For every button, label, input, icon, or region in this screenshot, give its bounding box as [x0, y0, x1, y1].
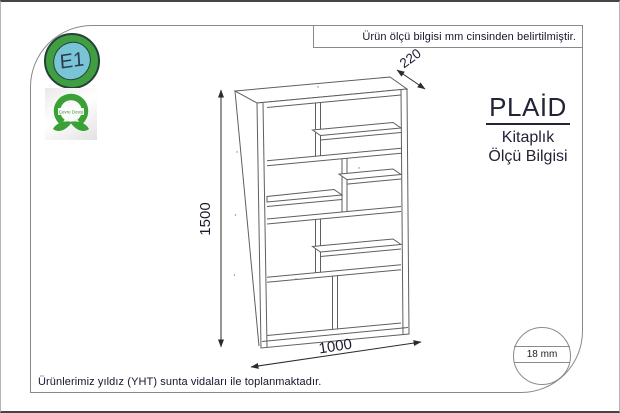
- bookshelf-technical-drawing: 1500 1000 220: [196, 47, 441, 377]
- product-info-label: Ölçü Bilgisi: [453, 147, 603, 167]
- product-title-block: PLAİD Kitaplık Ölçü Bilgisi: [453, 94, 603, 167]
- assembly-note: Ürünlerimiz yıldız (YHT) sunta vidaları …: [38, 376, 321, 388]
- e1-certificate-icon: E1: [44, 33, 100, 89]
- technical-sheet-page: Ürün ölçü bilgisi mm cinsinden belirtilm…: [0, 0, 620, 413]
- eco-friendly-icon: Çevre Dostu: [45, 88, 97, 140]
- board-thickness-label: 18 mm: [514, 347, 570, 362]
- dimension-height: 1500: [197, 90, 221, 347]
- eco-friendly-logo-graphic: Çevre Dostu: [45, 88, 97, 140]
- eco-friendly-label: Çevre Dostu: [59, 109, 84, 114]
- dimension-depth-label: 220: [397, 47, 424, 71]
- measurement-unit-note-box: Ürün ölçü bilgisi mm cinsinden belirtilm…: [313, 26, 583, 48]
- dimension-width-label: 1000: [318, 336, 354, 358]
- product-brand-title: PLAİD: [486, 94, 570, 125]
- board-thickness-icon: 18 mm: [513, 327, 571, 385]
- e1-certificate-label: E1: [52, 39, 92, 82]
- dimension-depth: 220: [397, 47, 425, 89]
- product-category: Kitaplık: [453, 128, 603, 148]
- dimension-height-label: 1500: [197, 202, 214, 235]
- thickness-chord-bottom: [514, 362, 570, 363]
- bookshelf-cabinet: [234, 77, 409, 348]
- measurement-unit-note: Ürün ölçü bilgisi mm cinsinden belirtilm…: [362, 31, 576, 43]
